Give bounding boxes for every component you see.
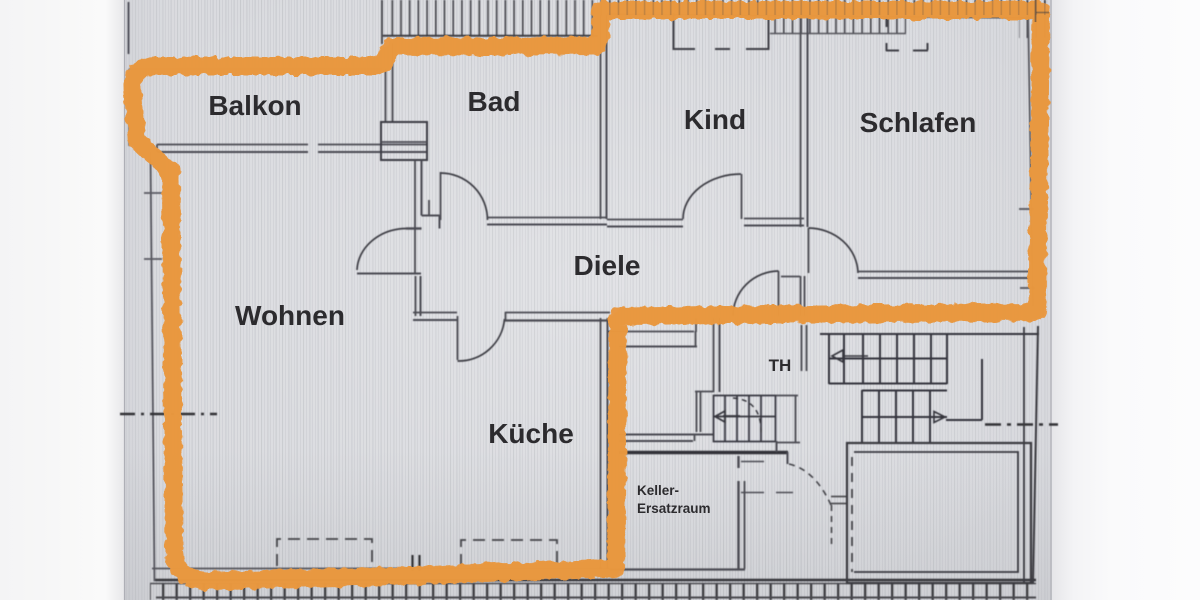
- svg-text:Kind: Kind: [684, 104, 746, 135]
- svg-text:TH: TH: [769, 356, 792, 375]
- svg-text:Bad: Bad: [468, 86, 521, 117]
- svg-text:Küche: Küche: [488, 418, 574, 449]
- svg-text:Balkon: Balkon: [208, 90, 301, 121]
- svg-text:Schlafen: Schlafen: [860, 107, 977, 138]
- svg-text:Diele: Diele: [574, 250, 641, 281]
- svg-text:Keller-: Keller-: [637, 483, 679, 498]
- svg-text:Ersatzraum: Ersatzraum: [637, 501, 711, 516]
- svg-text:Wohnen: Wohnen: [235, 300, 345, 331]
